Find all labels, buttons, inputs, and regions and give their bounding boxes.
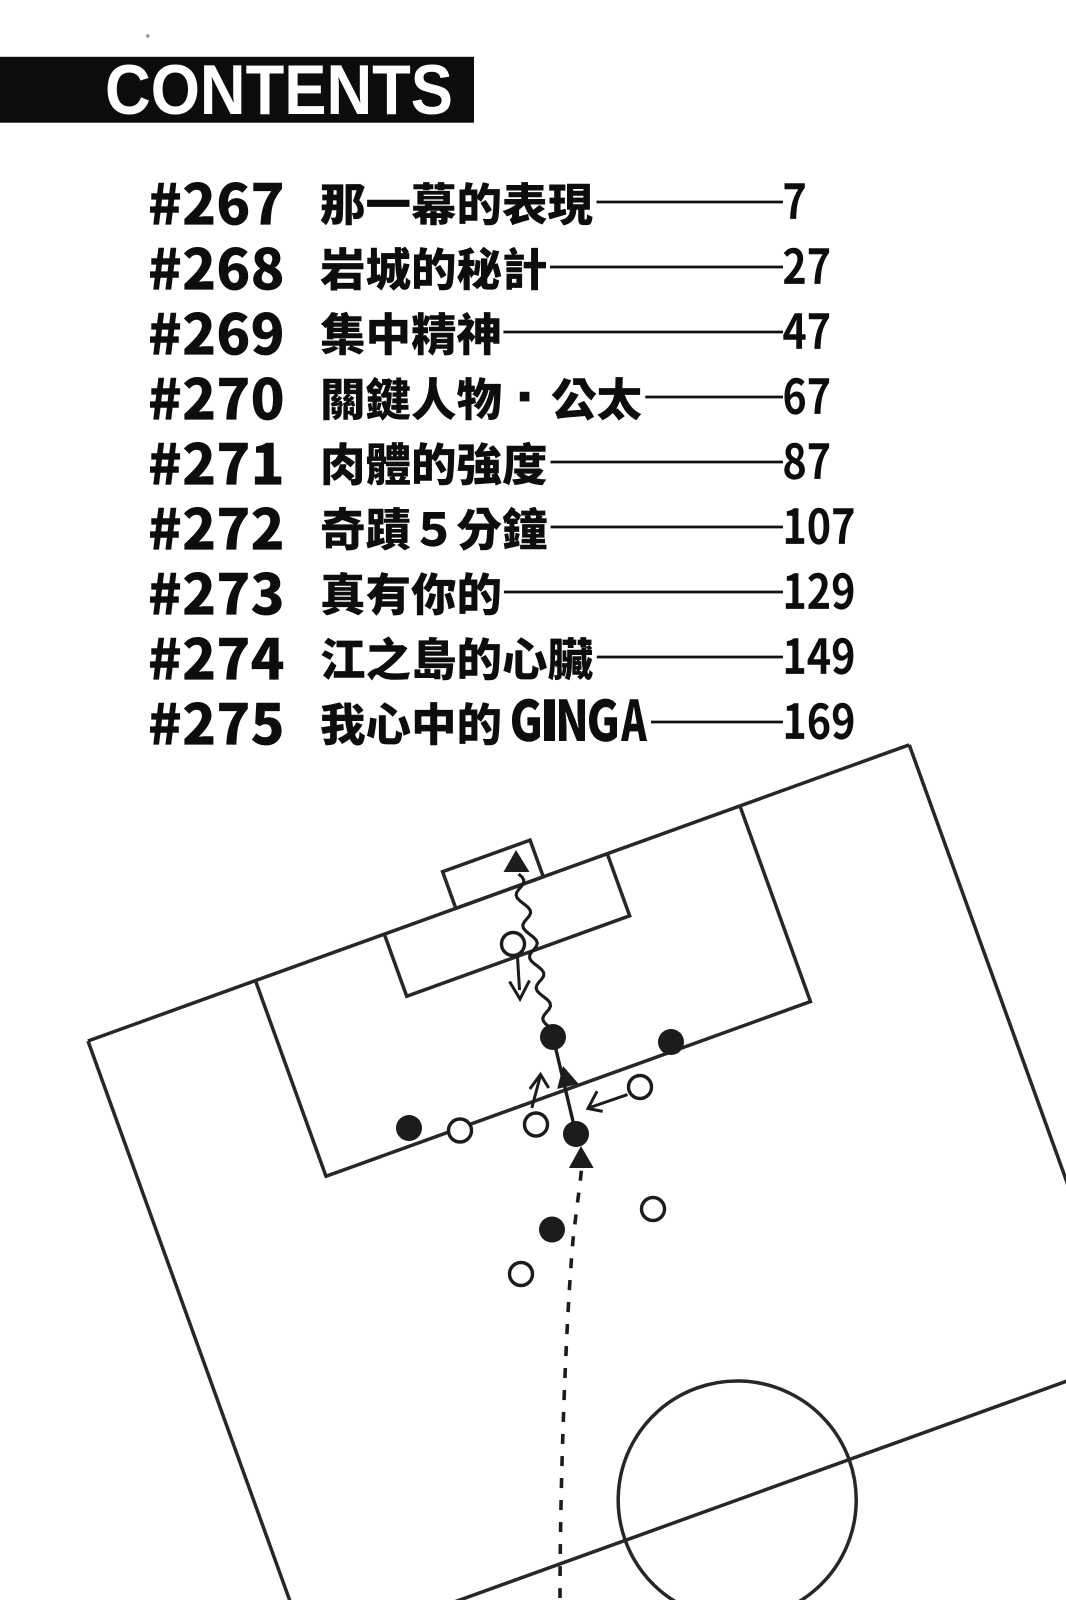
svg-text:CONTENTS: CONTENTS: [105, 51, 453, 130]
